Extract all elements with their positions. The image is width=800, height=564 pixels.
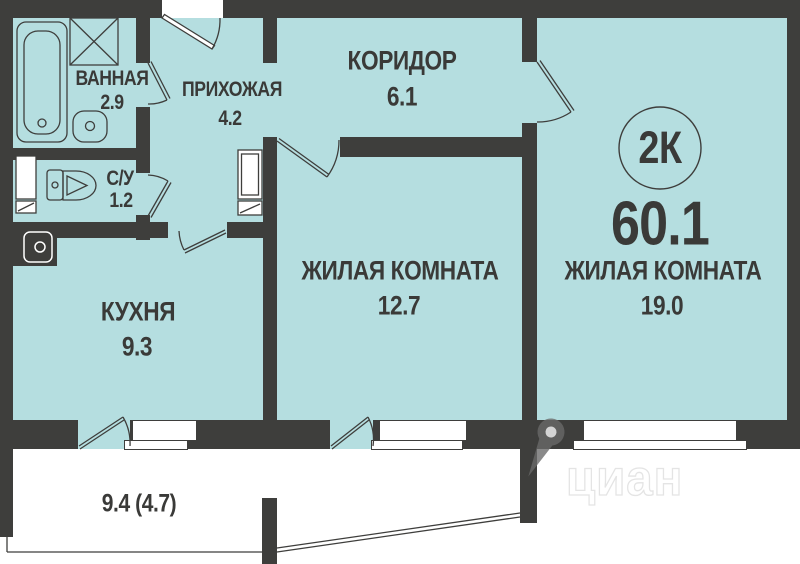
label-hallway-name: ПРИХОЖАЯ	[182, 78, 282, 102]
label-wc-area: 1.2	[109, 189, 132, 213]
cabinet-icon	[16, 156, 36, 213]
label-balcony-area: 9.4 (4.7)	[102, 490, 176, 519]
kitchen-sink-icon	[13, 227, 57, 266]
kitchen-balcony-door	[79, 417, 130, 449]
label-bathroom-name: ВАННАЯ	[76, 67, 149, 91]
watermark-text: циан	[566, 449, 683, 507]
entrance-door	[162, 15, 220, 50]
label-living1-area: 12.7	[378, 291, 420, 322]
label-living2-area: 19.0	[641, 291, 683, 322]
label-kitchen-area: 9.3	[122, 332, 152, 363]
washing-machine-icon	[70, 18, 118, 65]
label-wc-name: С/У	[106, 167, 133, 191]
label-type-badge: 2К	[638, 122, 681, 174]
map-pin-icon	[516, 414, 569, 483]
toilet-icon	[47, 170, 96, 200]
label-bathroom-area: 2.9	[100, 91, 123, 115]
wardrobe-icon	[238, 150, 262, 215]
bath-sink-icon	[73, 111, 107, 142]
kitchen-door	[179, 230, 226, 253]
wc-door	[148, 175, 171, 218]
living1-balcony-door	[331, 417, 373, 449]
balcony-outline	[7, 450, 520, 552]
label-living1-name: ЖИЛАЯ КОМНАТА	[301, 256, 498, 287]
living2-door	[537, 61, 574, 123]
floor-plan: ВАННАЯ 2.9 С/У 1.2 ПРИХОЖАЯ 4.2 КОРИДОР …	[0, 0, 800, 564]
living1-door	[277, 139, 339, 178]
label-hallway-area: 4.2	[218, 107, 241, 131]
label-corridor-name: КОРИДОР	[348, 46, 457, 77]
bathtub-icon	[17, 22, 67, 142]
bathroom-door	[148, 62, 170, 105]
label-kitchen-name: КУХНЯ	[101, 297, 175, 328]
label-corridor-area: 6.1	[387, 82, 417, 113]
label-living2-name: ЖИЛАЯ КОМНАТА	[564, 256, 761, 287]
label-total-area: 60.1	[611, 189, 709, 260]
